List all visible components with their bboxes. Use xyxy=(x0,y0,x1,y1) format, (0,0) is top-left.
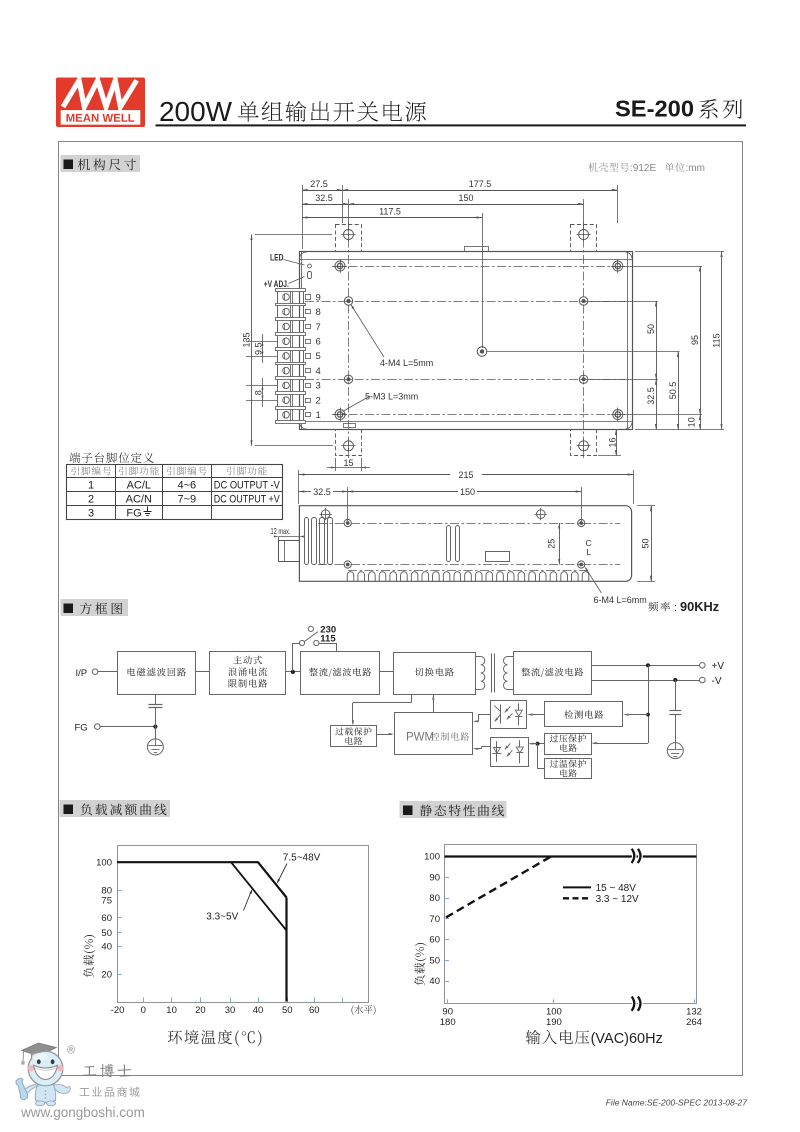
svg-text:20: 20 xyxy=(101,970,112,981)
svg-text:32.5: 32.5 xyxy=(315,193,333,203)
svg-text:4~6: 4~6 xyxy=(177,479,196,491)
svg-text::: : xyxy=(674,602,677,614)
svg-text:180: 180 xyxy=(440,1017,456,1028)
svg-text:15: 15 xyxy=(343,458,353,468)
svg-text:20: 20 xyxy=(195,1005,206,1016)
svg-text:5-M3 L=3mm: 5-M3 L=3mm xyxy=(365,392,418,402)
svg-text::mm: :mm xyxy=(686,163,705,174)
svg-text:6: 6 xyxy=(316,337,321,348)
svg-text:40: 40 xyxy=(429,976,440,987)
svg-text:8: 8 xyxy=(253,390,263,395)
svg-text:16: 16 xyxy=(608,437,618,447)
svg-text:95: 95 xyxy=(690,335,700,345)
svg-text:115: 115 xyxy=(320,634,336,645)
svg-text:215: 215 xyxy=(458,470,473,480)
svg-text:50: 50 xyxy=(429,956,440,967)
svg-text:L: L xyxy=(587,547,592,557)
svg-text:200W: 200W xyxy=(159,96,233,127)
svg-text:3.3~5V: 3.3~5V xyxy=(206,912,238,923)
svg-text:10: 10 xyxy=(686,417,696,427)
svg-text:+V: +V xyxy=(712,661,725,672)
svg-text:I/P: I/P xyxy=(76,668,88,679)
svg-text:12 max.: 12 max. xyxy=(271,527,291,536)
svg-text:50: 50 xyxy=(282,1005,293,1016)
svg-text:9.5: 9.5 xyxy=(253,342,263,355)
svg-text:100: 100 xyxy=(96,857,112,868)
svg-text:3.3 ~ 12V: 3.3 ~ 12V xyxy=(596,894,639,905)
svg-text:27.5: 27.5 xyxy=(310,179,328,189)
svg-text:90: 90 xyxy=(429,873,440,884)
svg-text:3: 3 xyxy=(316,381,321,392)
svg-text:AC/L: AC/L xyxy=(127,479,151,491)
svg-text:SE-200: SE-200 xyxy=(615,96,694,122)
svg-text:3: 3 xyxy=(88,508,94,520)
svg-text:60: 60 xyxy=(429,935,440,946)
svg-text:www.gongboshi.com: www.gongboshi.com xyxy=(20,1105,145,1120)
svg-text::912E: :912E xyxy=(630,163,656,174)
svg-text:-V: -V xyxy=(712,676,722,687)
svg-text:50: 50 xyxy=(641,538,651,548)
svg-text:4-M4 L=5mm: 4-M4 L=5mm xyxy=(380,358,433,368)
svg-text:150: 150 xyxy=(458,193,473,203)
svg-text:50: 50 xyxy=(646,324,656,334)
svg-text:60: 60 xyxy=(309,1005,320,1016)
svg-text:32.5: 32.5 xyxy=(646,387,656,405)
svg-text:AC/N: AC/N xyxy=(126,493,152,505)
svg-text:7~9: 7~9 xyxy=(177,493,196,505)
svg-text:+V ADJ.: +V ADJ. xyxy=(264,279,289,289)
svg-text:File Name:SE-200-SPEC 2013-08: File Name:SE-200-SPEC 2013-08-27 xyxy=(606,1098,748,1108)
svg-text:DC OUTPUT +V: DC OUTPUT +V xyxy=(214,493,281,505)
svg-text:32.5: 32.5 xyxy=(313,487,331,497)
svg-text:1: 1 xyxy=(316,410,321,421)
svg-text:4: 4 xyxy=(316,366,321,377)
svg-text:8: 8 xyxy=(316,307,321,318)
svg-text:177.5: 177.5 xyxy=(469,179,492,189)
svg-text:150: 150 xyxy=(460,487,475,497)
svg-text:90KHz: 90KHz xyxy=(680,599,719,614)
svg-text:6-M4 L=6mm: 6-M4 L=6mm xyxy=(594,595,647,605)
svg-text:115: 115 xyxy=(712,333,722,347)
svg-text:5: 5 xyxy=(316,351,321,362)
svg-text:7: 7 xyxy=(316,322,321,333)
svg-text:FG: FG xyxy=(126,508,141,520)
svg-text:9: 9 xyxy=(316,292,321,303)
svg-text:-20: -20 xyxy=(111,1005,125,1016)
svg-text:DC OUTPUT -V: DC OUTPUT -V xyxy=(214,479,281,491)
svg-text:LED: LED xyxy=(270,253,284,263)
svg-text:75: 75 xyxy=(101,896,112,907)
svg-text:70: 70 xyxy=(429,914,440,925)
svg-text:0: 0 xyxy=(141,1005,146,1016)
svg-text:50: 50 xyxy=(101,928,112,939)
svg-text:40: 40 xyxy=(253,1005,264,1016)
svg-text:FG: FG xyxy=(75,723,88,734)
svg-text:264: 264 xyxy=(686,1017,702,1028)
svg-text:30: 30 xyxy=(225,1005,236,1016)
svg-text:10: 10 xyxy=(166,1005,177,1016)
svg-text:25: 25 xyxy=(546,539,556,549)
svg-text:50.5: 50.5 xyxy=(668,382,678,400)
svg-text:2: 2 xyxy=(316,395,321,406)
svg-text:®: ® xyxy=(67,1045,75,1057)
svg-text:15 ~ 48V: 15 ~ 48V xyxy=(596,883,637,894)
svg-text:100: 100 xyxy=(424,852,440,863)
svg-text:2: 2 xyxy=(88,493,94,505)
svg-text:117.5: 117.5 xyxy=(379,207,401,217)
svg-text:1: 1 xyxy=(88,479,94,491)
svg-text:(VAC)60Hz: (VAC)60Hz xyxy=(591,1031,663,1047)
svg-text:40: 40 xyxy=(101,941,112,952)
svg-text:PWM: PWM xyxy=(406,732,434,744)
svg-text:190: 190 xyxy=(546,1017,562,1028)
svg-text:80: 80 xyxy=(429,893,440,904)
svg-text:60: 60 xyxy=(101,913,112,924)
svg-text:7.5~48V: 7.5~48V xyxy=(283,853,321,864)
svg-text:135: 135 xyxy=(242,332,252,347)
